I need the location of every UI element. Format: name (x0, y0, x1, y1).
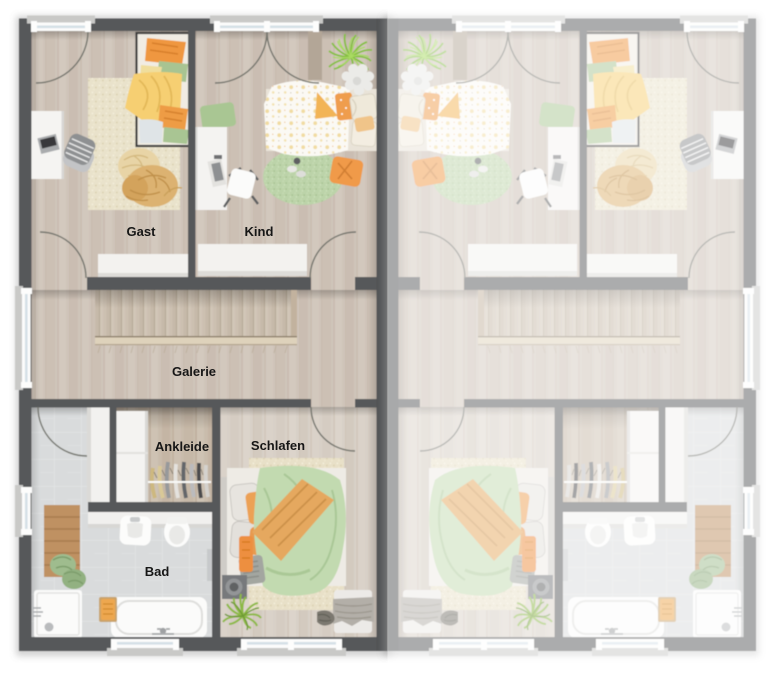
svg-text:Ankleide: Ankleide (155, 439, 209, 454)
svg-text:Schlafen: Schlafen (251, 438, 305, 453)
svg-text:Galerie: Galerie (172, 364, 216, 379)
svg-text:Bad: Bad (145, 564, 170, 579)
svg-text:Gast: Gast (127, 224, 157, 239)
svg-text:Kind: Kind (245, 224, 274, 239)
